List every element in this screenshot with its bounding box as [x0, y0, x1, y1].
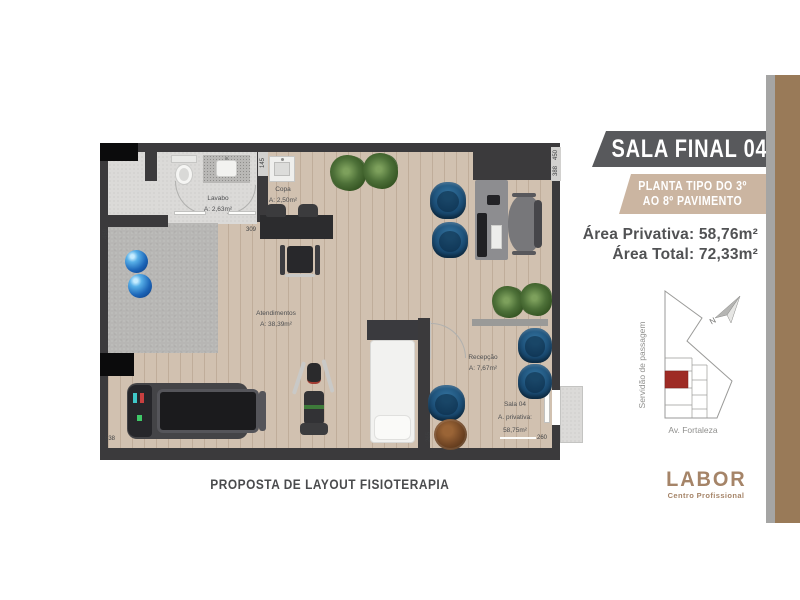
treadmill-end-rail: [259, 391, 266, 431]
copa-counter-table: [260, 215, 333, 239]
copa-sink: [274, 162, 290, 176]
wall-entry-lavabo: [145, 143, 157, 181]
wall-left: [100, 143, 108, 460]
street-label-left: Servidão de passagem: [637, 322, 647, 409]
subtitle-line1: PLANTA TIPO DO 3º: [630, 179, 755, 194]
highlighted-unit: [665, 371, 688, 388]
wheelchair-wheel: [315, 245, 320, 275]
wall-below-entry: [100, 215, 168, 227]
street-label-bottom: Av. Fortaleza: [668, 425, 718, 435]
office-chair: [508, 195, 542, 253]
elliptical-arm: [321, 359, 334, 393]
title-banner-text: SALA FINAL 04: [611, 131, 767, 167]
plant: [492, 286, 524, 318]
wheelchair-handle: [285, 274, 315, 277]
lavabo-sink: [216, 160, 237, 177]
desk-papers: [491, 225, 502, 249]
brochure-page: Lavabo A: 2,63m² Copa A: 2,50m² Atendime…: [0, 0, 800, 600]
reception-partition: [472, 319, 548, 326]
massage-table: [367, 320, 418, 445]
elliptical-base: [300, 423, 328, 435]
gym-ball: [125, 250, 148, 273]
elliptical-trainer: [293, 359, 335, 439]
exercise-mat: [103, 223, 218, 353]
area-summary: Área Privativa: 58,76m² Área Total: 72,3…: [540, 225, 758, 269]
treadmill: [127, 383, 248, 439]
plant: [363, 153, 398, 189]
subtitle-line2: AO 8º PAVIMENTO: [630, 194, 755, 209]
treadmill-belt: [157, 389, 259, 433]
area-privativa-text: Área Privativa: 58,76m²: [540, 225, 758, 245]
column-top-left: [100, 143, 138, 161]
wheelchair-wheel: [280, 245, 285, 275]
office-chair-armrest: [512, 251, 536, 255]
massage-table-headboard: [367, 320, 418, 340]
north-arrow-icon: N: [708, 296, 740, 326]
wood-stool: [434, 419, 467, 450]
room-area: A: 2,63m²: [188, 204, 248, 215]
lavabo-vanity: [203, 155, 250, 183]
wheelchair: [277, 242, 323, 280]
reception-armchair: [518, 328, 552, 363]
room-label-lavabo: Lavabo A: 2,63m²: [188, 193, 248, 215]
monitor: [477, 213, 487, 257]
visitor-armchair: [432, 222, 468, 258]
edge-stripe-brown: [775, 75, 800, 523]
plan-caption-text: PROPOSTA DE LAYOUT FISIOTERAPIA: [210, 477, 449, 492]
elliptical-arm: [292, 361, 306, 395]
plan-caption: PROPOSTA DE LAYOUT FISIOTERAPIA: [100, 476, 560, 494]
elliptical-stripe: [304, 405, 324, 409]
reception-armchair: [518, 364, 552, 399]
column-left: [100, 353, 134, 376]
edge-stripe-gray: [766, 75, 775, 523]
dimension-right-top-b: 388: [552, 161, 560, 181]
exterior-corridor: [560, 386, 583, 443]
dimension-bottom-right: 260: [537, 434, 547, 442]
faucet-icon: [281, 158, 284, 161]
room-label-atendimentos: Atendimentos A: 38,39m²: [246, 308, 306, 330]
gym-ball: [128, 274, 152, 298]
room-name: Atendimentos: [246, 308, 306, 319]
toilet: [170, 155, 198, 187]
room-name: Copa: [253, 184, 313, 195]
plant: [330, 155, 366, 191]
pillow: [374, 415, 411, 440]
visitor-armchair: [430, 182, 466, 219]
room-label-copa: Copa A: 2,50m²: [253, 184, 313, 206]
wall-bottom: [100, 448, 560, 460]
treadmill-display: [137, 415, 142, 421]
room-name: Lavabo: [188, 193, 248, 204]
faucet-icon: [225, 157, 228, 160]
dimension-copa-wall: 145: [259, 153, 267, 173]
room-label-recepcao: Recepção A: 7,67m²: [453, 352, 513, 374]
room-area: A: 7,67m²: [453, 363, 513, 374]
toilet-seat: [179, 168, 189, 181]
copa-sink-counter: [269, 156, 295, 182]
dimension-left-bottom: 638: [105, 435, 115, 443]
room-area: A. privativa:: [483, 411, 547, 424]
wall-right-lower: [552, 425, 560, 460]
building-outline: [665, 291, 732, 418]
desk-phone: [487, 195, 500, 205]
floor-plan: Lavabo A: 2,63m² Copa A: 2,50m² Atendime…: [100, 143, 560, 460]
room-area: A: 38,39m²: [246, 319, 306, 330]
brand-name: LABOR: [666, 471, 746, 489]
wall-block-desk: [473, 150, 557, 180]
subtitle-banner: PLANTA TIPO DO 3º AO 8º PAVIMENTO: [619, 174, 766, 214]
office-chair-armrest: [512, 193, 536, 197]
brand-logo: LABOR Centro Profissional: [660, 471, 752, 500]
room-name: Sala 04: [483, 398, 547, 411]
area-total-text: Área Total: 72,33m²: [540, 245, 758, 265]
site-map: N Servidão de passagem Av. Fortaleza: [620, 268, 780, 443]
dimension-line: [500, 437, 536, 439]
brand-tagline: Centro Profissional: [660, 491, 752, 500]
room-label-sala04: Sala 04 A. privativa: 58,75m²: [483, 398, 547, 437]
title-banner: SALA FINAL 04: [592, 131, 766, 167]
reception-armchair: [428, 385, 465, 421]
treadmill-display: [140, 393, 144, 403]
plant: [520, 283, 552, 316]
dimension-reception-left: 265: [425, 427, 433, 447]
room-name: Recepção: [453, 352, 513, 363]
elliptical-seat: [307, 363, 321, 384]
dimension-left-top: 459: [102, 224, 110, 244]
toilet-tank: [171, 155, 197, 163]
wheelchair-seat: [287, 246, 313, 273]
dimension-copa-bottom: 309: [246, 226, 256, 234]
room-area: A: 2,50m²: [253, 195, 313, 206]
treadmill-display: [133, 393, 137, 403]
